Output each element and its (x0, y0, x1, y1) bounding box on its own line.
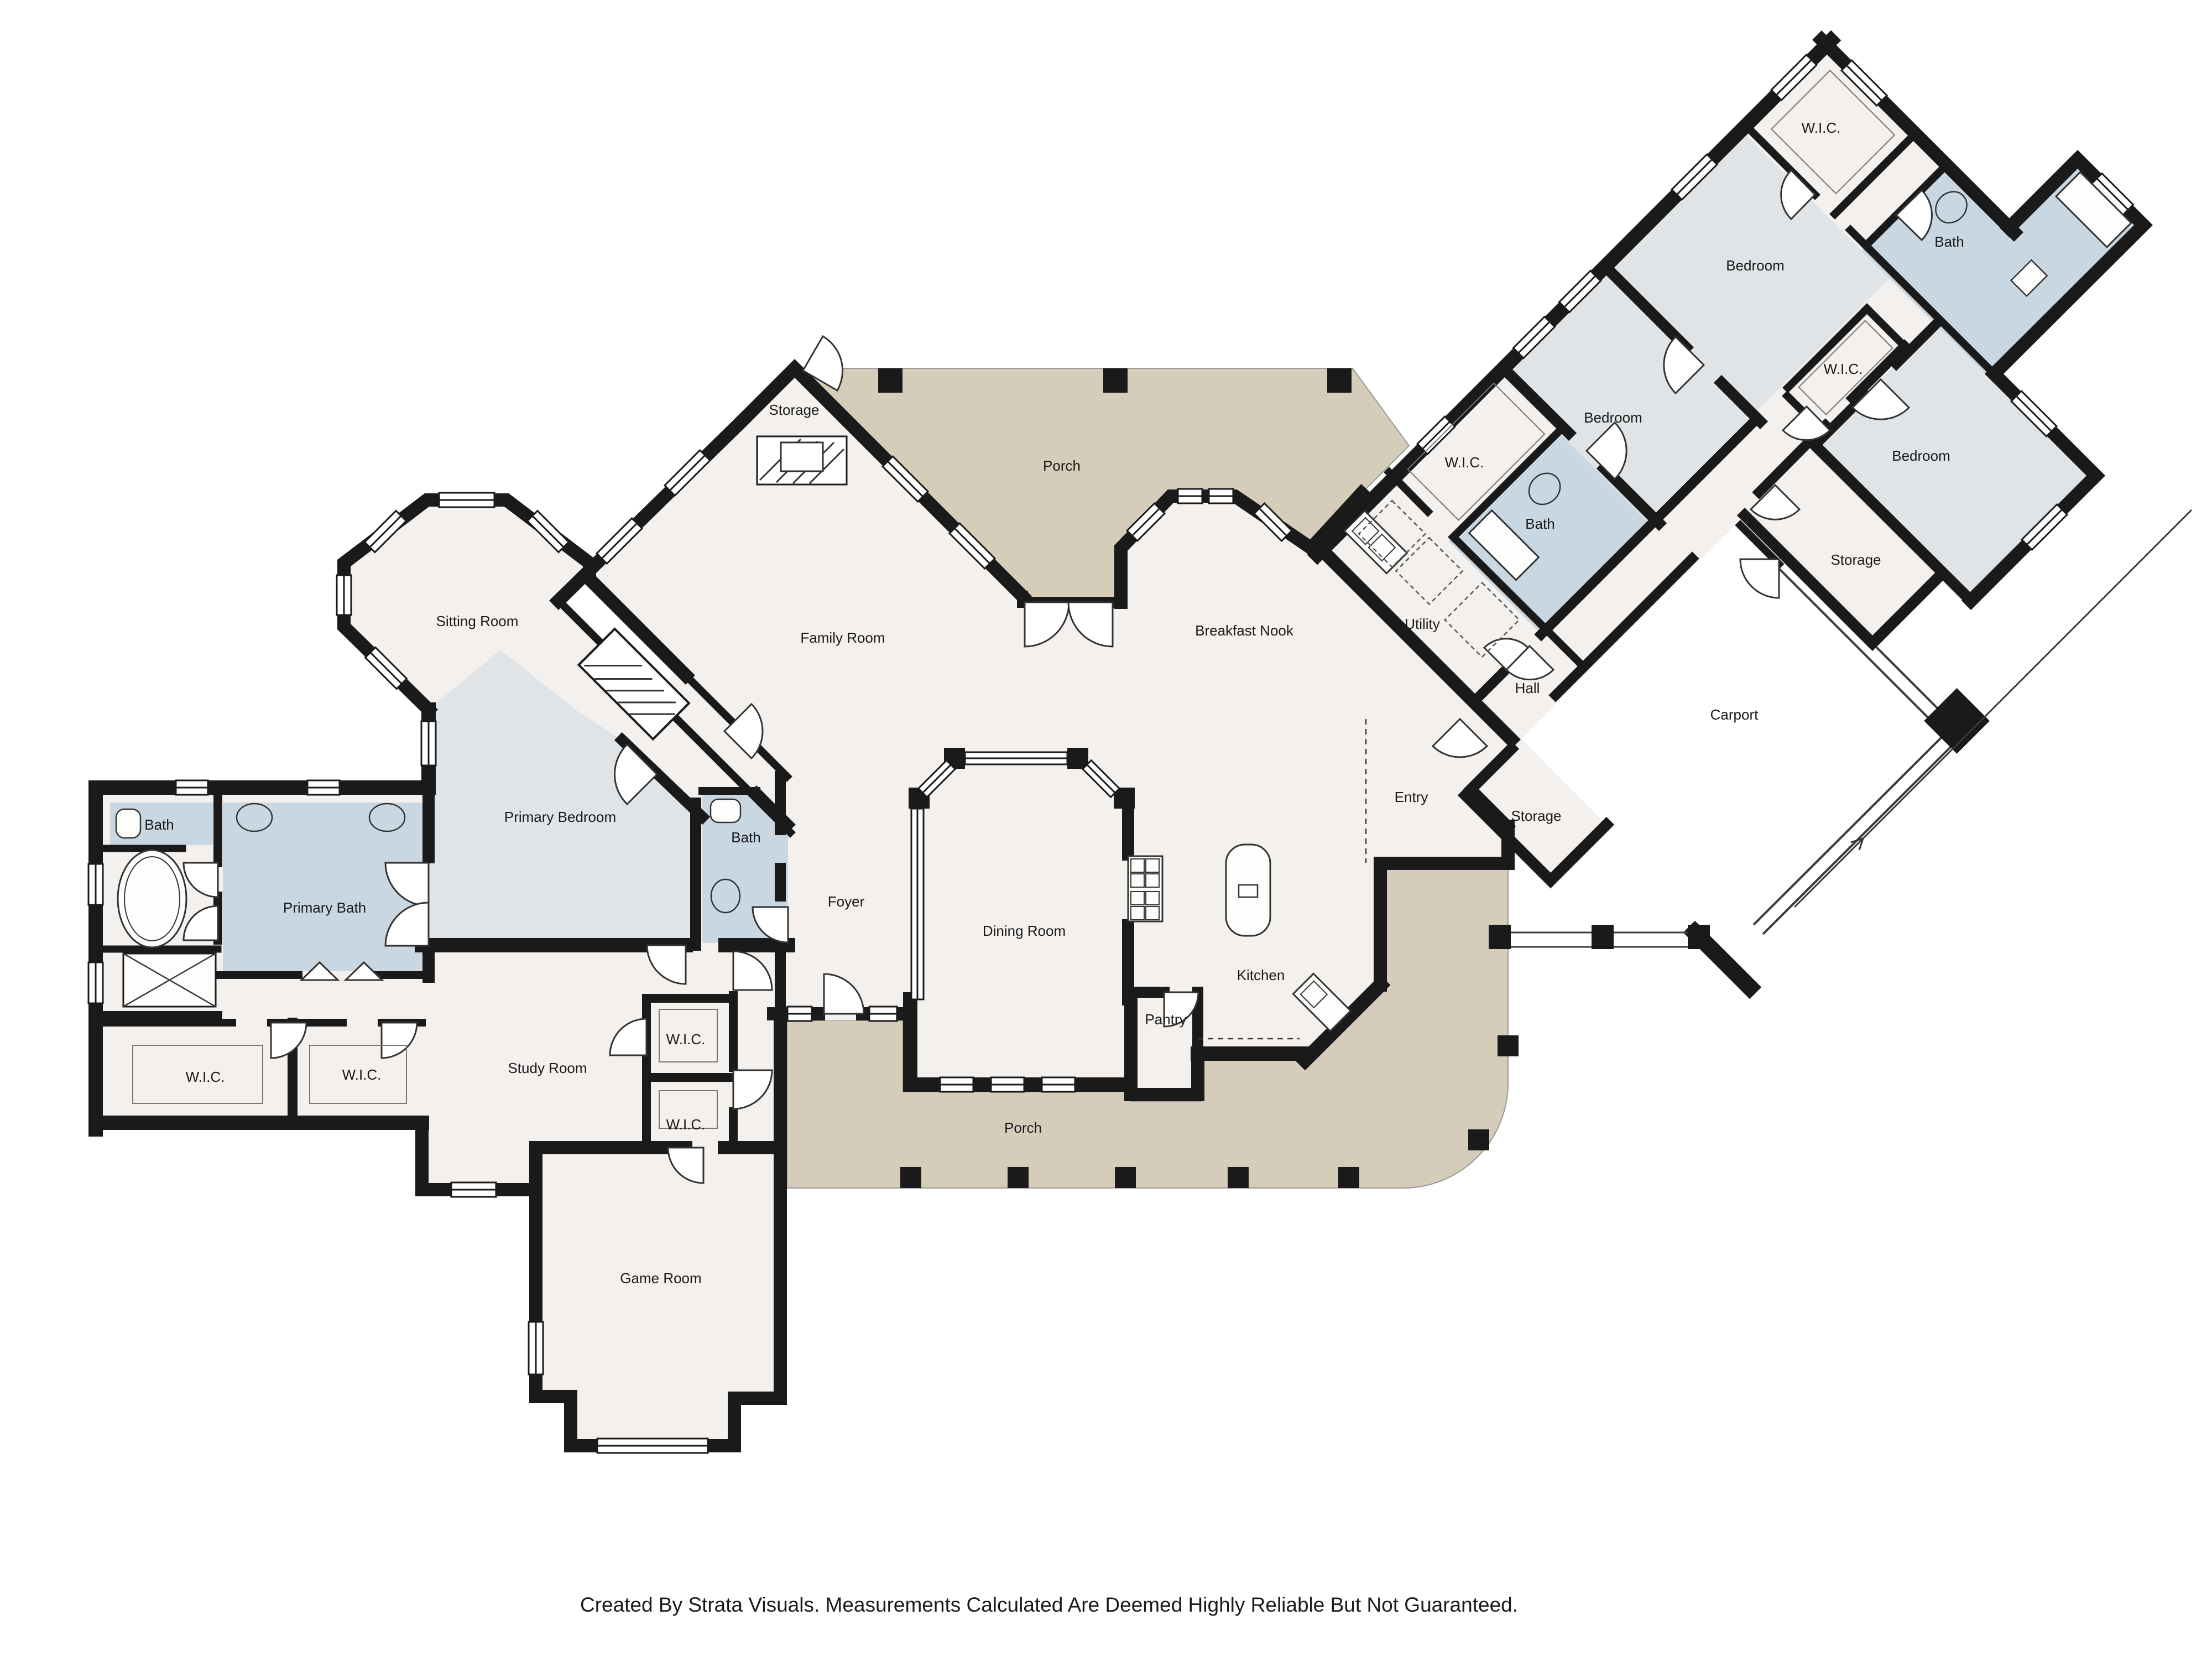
svg-text:Bath: Bath (731, 829, 761, 846)
svg-text:Pantry: Pantry (1145, 1011, 1186, 1028)
svg-text:W.I.C.: W.I.C. (1824, 361, 1863, 377)
svg-text:Family Room: Family Room (800, 629, 885, 646)
svg-text:Bedroom: Bedroom (1584, 409, 1642, 426)
svg-text:Sitting Room: Sitting Room (436, 613, 519, 629)
svg-text:Porch: Porch (1004, 1119, 1042, 1136)
svg-text:W.I.C.: W.I.C. (666, 1031, 706, 1048)
svg-text:Study Room: Study Room (508, 1060, 587, 1076)
svg-text:Kitchen: Kitchen (1237, 967, 1285, 983)
svg-text:Breakfast Nook: Breakfast Nook (1195, 622, 1294, 639)
svg-text:Storage: Storage (1511, 807, 1561, 824)
svg-text:Bath: Bath (1525, 515, 1555, 532)
svg-text:Foyer: Foyer (828, 893, 865, 910)
svg-text:Bedroom: Bedroom (1892, 447, 1950, 464)
svg-text:Porch: Porch (1043, 457, 1081, 474)
svg-text:Game Room: Game Room (620, 1270, 701, 1286)
svg-text:Entry: Entry (1395, 789, 1428, 805)
svg-text:Primary Bath: Primary Bath (283, 899, 366, 916)
svg-text:W.I.C.: W.I.C. (666, 1116, 706, 1133)
svg-text:Created By Strata Visuals. Mea: Created By Strata Visuals. Measurements … (580, 1593, 1518, 1616)
svg-text:Storage: Storage (769, 402, 819, 418)
svg-text:Primary Bedroom: Primary Bedroom (504, 809, 616, 825)
svg-text:W.I.C.: W.I.C. (186, 1069, 225, 1085)
svg-text:W.I.C.: W.I.C. (342, 1066, 382, 1083)
svg-text:W.I.C.: W.I.C. (1802, 119, 1841, 136)
svg-text:W.I.C.: W.I.C. (1445, 454, 1484, 471)
svg-text:Dining Room: Dining Room (983, 923, 1066, 939)
svg-text:Utility: Utility (1405, 616, 1440, 632)
svg-text:Bedroom: Bedroom (1726, 257, 1785, 274)
svg-text:Bath: Bath (144, 816, 174, 833)
svg-text:Carport: Carport (1710, 706, 1759, 723)
svg-text:Bath: Bath (1934, 233, 1964, 250)
svg-text:Storage: Storage (1830, 551, 1881, 568)
svg-text:Hall: Hall (1515, 680, 1540, 696)
